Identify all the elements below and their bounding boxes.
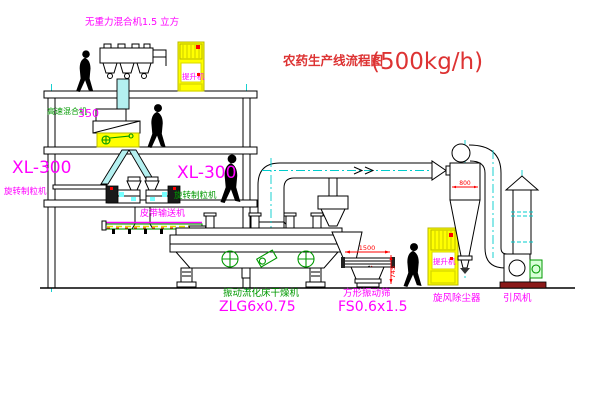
person-second-floor <box>148 104 168 148</box>
fan-label: 引风机 <box>503 292 532 304</box>
granulator-model-left: XL-300 <box>12 158 71 178</box>
granulator-name-right: 旋转制粒机 <box>174 190 217 201</box>
granulator-name-left: 旋转制粒机 <box>4 186 47 197</box>
belt-conveyor-label: 皮带输送机 <box>140 207 185 219</box>
cyclone-label: 旋风除尘器 <box>433 292 481 304</box>
sieve-length-dim: 1500 <box>359 244 376 252</box>
fan-base <box>500 282 546 288</box>
granulator-model-right: XL-300 <box>177 163 236 183</box>
induced-draft-fan <box>500 254 546 288</box>
flow-diagram-canvas: 提升机 <box>0 0 600 403</box>
page-title: 农药生产线流程图 <box>282 53 383 68</box>
cyclone-dim: 800 <box>459 180 471 187</box>
gravity-free-mixer <box>100 44 166 109</box>
production-line-drawing: 提升机 <box>0 0 600 403</box>
page-title-capacity: (500kg/h) <box>371 49 483 75</box>
person-ground <box>404 243 424 287</box>
bucket-elevator-top: 提升机 <box>178 42 205 91</box>
sieve-name-label: 方形振动筛 <box>343 287 391 299</box>
bucket-elevator-right: 提升机 <box>428 228 458 285</box>
granulator-left <box>106 177 141 203</box>
elevator-top-text: 提升机 <box>182 71 205 81</box>
dryer-name-label: 振动流化床干燥机 <box>223 287 300 299</box>
high-speed-mixer-model: 350 <box>78 107 99 120</box>
exhaust-duct <box>250 158 452 234</box>
high-speed-mixer <box>93 109 140 147</box>
top-mixer-label: 无重力混合机1.5 立方 <box>85 16 179 28</box>
sieve-height-dim: 745 <box>389 266 397 278</box>
person-top-floor <box>76 50 95 92</box>
vibrating-sieve: 1500 745 <box>332 232 397 287</box>
dryer-model-label: ZLG6x0.75 <box>219 299 296 315</box>
sieve-model-label: FS0.6x1.5 <box>338 299 408 315</box>
